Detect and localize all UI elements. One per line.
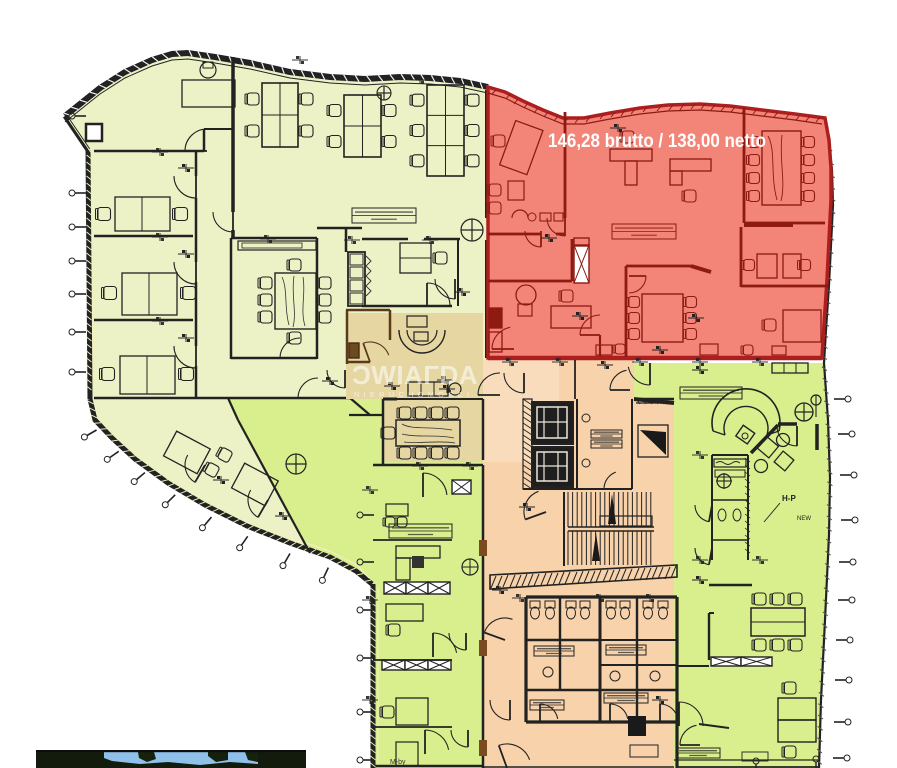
svg-text:NIERUCHOMOŚCI: NIERUCHOMOŚCI [354,390,473,399]
svg-text:NEW: NEW [797,516,811,522]
svg-text:M-by: M-by [390,759,406,766]
svg-text:146,28 brutto / 138,00 netto: 146,28 brutto / 138,00 netto [548,131,766,152]
svg-text:ƆWIAΓDA: ƆWIAΓDA [352,360,478,390]
svg-text:H-P: H-P [782,494,796,503]
